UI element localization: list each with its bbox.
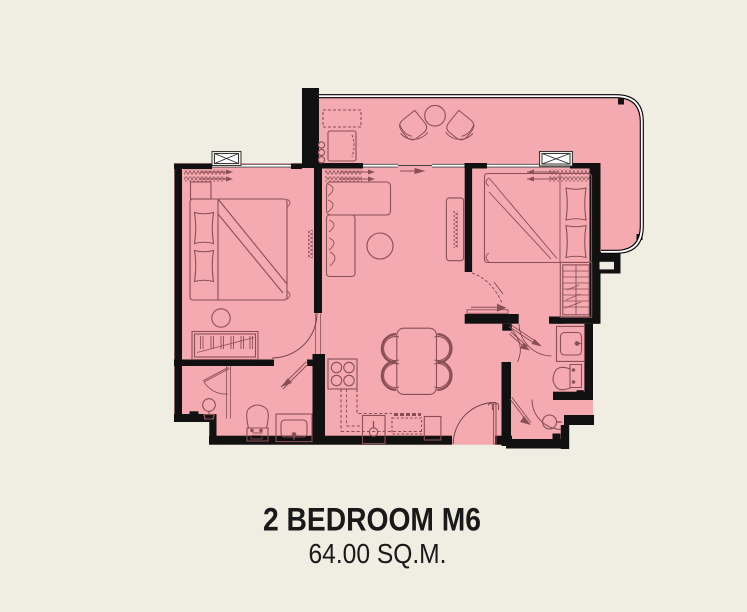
- svg-text:64.00 SQ.M.: 64.00 SQ.M.: [309, 538, 447, 569]
- svg-text:2 BEDROOM M6: 2 BEDROOM M6: [263, 502, 481, 538]
